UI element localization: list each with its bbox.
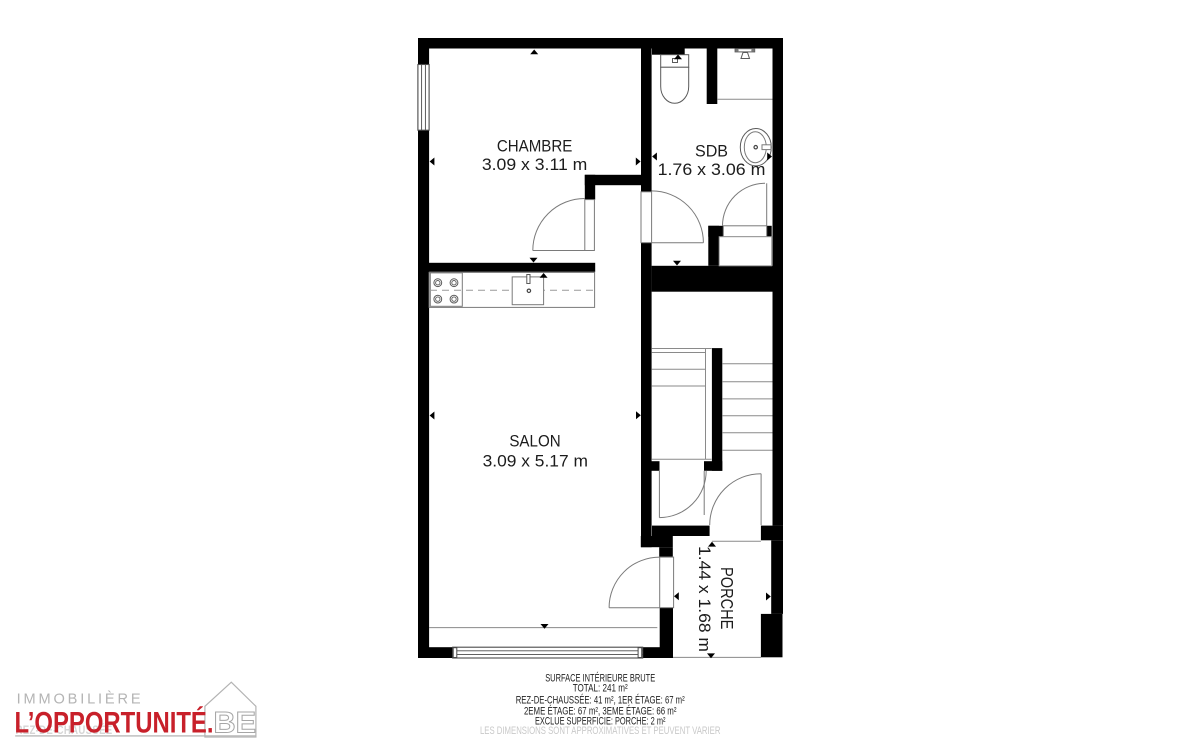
svg-text:PORCHE: PORCHE [717, 567, 737, 629]
svg-text:1.44 x 1.68 m: 1.44 x 1.68 m [695, 546, 714, 652]
svg-text:SDB: SDB [695, 143, 728, 161]
svg-text:BE: BE [214, 706, 257, 739]
svg-text:LES DIMENSIONS SONT APPROXIMAT: LES DIMENSIONS SONT APPROXIMATIVES ET PE… [480, 725, 721, 737]
svg-text:TOTAL: 241 m²: TOTAL: 241 m² [573, 683, 628, 695]
svg-text:3.09 x 5.17 m: 3.09 x 5.17 m [483, 453, 588, 471]
svg-text:L’OPPORTUNITÉ.: L’OPPORTUNITÉ. [15, 705, 214, 739]
svg-text:3.09 x 3.11 m: 3.09 x 3.11 m [482, 156, 588, 174]
svg-text:CHAMBRE: CHAMBRE [497, 137, 573, 155]
svg-text:SALON: SALON [509, 433, 560, 451]
svg-text:1.76 x 3.06 m: 1.76 x 3.06 m [658, 161, 766, 179]
